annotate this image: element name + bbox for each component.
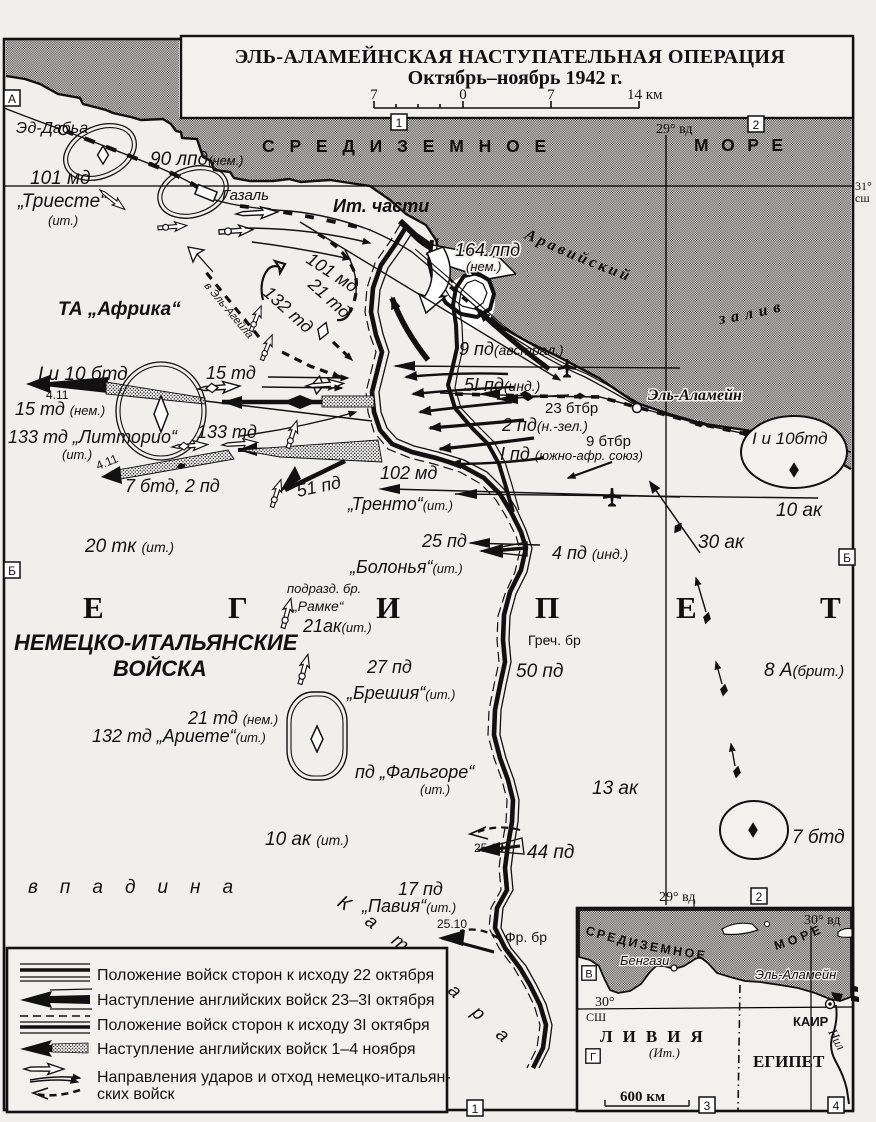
svg-text:Положение войск сторон к исхо: Положение войск сторон к исходу 3I октяб… [97,1017,430,1034]
svg-text:Г: Г [228,590,248,625]
svg-text:Эль-Аламейн: Эль-Аламейн [648,387,742,404]
svg-text:600 км: 600 км [620,1089,665,1105]
svg-text:44 пд: 44 пд [527,842,574,863]
svg-text:Октябрь–ноябрь 1942 г.: Октябрь–ноябрь 1942 г. [408,67,623,89]
svg-text:Наступление английских войск 1: Наступление английских войск 1–4 ноября [97,1041,415,1058]
svg-text:А: А [8,92,16,106]
svg-text:Б: Б [843,551,851,565]
svg-text:СШ: СШ [586,1010,606,1024]
svg-text:Ит. части: Ит. части [333,196,429,216]
svg-text:И: И [376,590,400,625]
svg-text:23 бтбр: 23 бтбр [545,400,598,417]
svg-text:8 А(брит.): 8 А(брит.) [764,660,844,681]
svg-text:пд „Фальгоре“: пд „Фальгоре“ [355,762,475,782]
svg-text:Б: Б [8,564,16,578]
svg-text:25 пд: 25 пд [421,531,467,551]
svg-text:133 тд „Литторио“: 133 тд „Литторио“ [8,427,178,447]
svg-text:ЭЛЬ-АЛАМЕЙНСКАЯ НАСТУПАТЕЛЬНА: ЭЛЬ-АЛАМЕЙНСКАЯ НАСТУПАТЕЛЬНАЯ ОПЕРАЦИЯ [235,45,786,68]
svg-text:2: 2 [756,890,763,904]
svg-text:25.10: 25.10 [474,841,504,855]
svg-text:14 км: 14 км [627,87,663,103]
svg-text:7 бтд: 7 бтд [792,827,845,848]
svg-text:0: 0 [459,87,467,103]
svg-text:Направления ударов и отход нем: Направления ударов и отход немецко-италь… [97,1069,451,1086]
svg-text:Эль-Аламейн: Эль-Аламейн [755,967,836,982]
svg-text:Греч. бр: Греч. бр [528,632,581,648]
svg-text:сш: сш [855,191,870,205]
svg-text:впадина: впадина [28,877,255,898]
svg-text:Положение войск сторон к исход: Положение войск сторон к исходу 22 октяб… [97,967,434,984]
svg-text:„Триесте“: „Триесте“ [17,191,108,212]
svg-text:30° вд: 30° вд [804,913,840,928]
svg-text:5I пд(инд.): 5I пд(инд.) [464,375,540,395]
svg-text:(ит.): (ит.) [420,782,450,797]
svg-text:4 пд (инд.): 4 пд (инд.) [552,543,628,563]
svg-text:(нем.): (нем.) [466,259,501,274]
svg-text:30 ак: 30 ак [698,532,745,553]
svg-text:Т: Т [820,590,841,625]
svg-text:КАИР: КАИР [793,1014,829,1029]
svg-text:10 ак (ит.): 10 ак (ит.) [265,829,349,850]
svg-text:В: В [585,969,592,981]
svg-text:4: 4 [833,1099,840,1113]
svg-text:ВОЙСКА: ВОЙСКА [113,655,207,681]
svg-text:ских войск: ских войск [97,1086,176,1103]
svg-text:27 пд: 27 пд [366,657,412,677]
svg-text:„Рамке“: „Рамке“ [292,598,345,614]
svg-text:1: 1 [472,1102,479,1116]
svg-text:2 пд(н.-зел.): 2 пд(н.-зел.) [501,415,588,435]
svg-text:подразд. бр.: подразд. бр. [287,581,361,596]
svg-text:102 мд: 102 мд [380,463,437,483]
svg-text:29° вд: 29° вд [659,890,695,905]
svg-text:НЕМЕЦКО-ИТАЛЬЯНСКИЕ: НЕМЕЦКО-ИТАЛЬЯНСКИЕ [14,630,299,655]
svg-text:(Ит.): (Ит.) [649,1045,680,1060]
svg-text:90 лпд(нем.): 90 лпд(нем.) [150,149,244,170]
svg-text:Е: Е [83,590,104,625]
svg-text:Г: Г [590,1052,596,1064]
svg-text:10 ак: 10 ак [776,500,823,521]
svg-text:(ит.): (ит.) [62,447,92,462]
svg-text:ЕГИПЕТ: ЕГИПЕТ [753,1052,825,1071]
svg-text:20 тк (ит.): 20 тк (ит.) [84,536,174,557]
svg-text:3: 3 [704,1099,711,1113]
svg-text:9 пд(австрал.): 9 пд(австрал.) [459,339,564,359]
svg-text:ТА „Африка“: ТА „Африка“ [58,299,181,320]
svg-text:П: П [535,590,559,625]
svg-text:ЛИВИЯ: ЛИВИЯ [600,1027,713,1046]
svg-text:1: 1 [396,116,403,130]
svg-text:(ит.): (ит.) [48,213,78,228]
svg-text:13 ак: 13 ак [592,778,639,799]
svg-text:164 лпд: 164 лпд [455,240,520,260]
svg-text:Газаль: Газаль [222,187,269,204]
svg-text:Е: Е [676,590,697,625]
svg-text:15 тд: 15 тд [206,363,256,383]
svg-text:Фр. бр: Фр. бр [505,929,547,945]
svg-text:25.10: 25.10 [437,917,467,931]
svg-text:7: 7 [547,87,555,103]
svg-text:7 бтд, 2 пд: 7 бтд, 2 пд [125,476,220,496]
svg-text:Наступление английских войск 2: Наступление английских войск 23–3I октяб… [97,992,435,1009]
svg-text:Эд-Дабьа: Эд-Дабьа [16,120,88,137]
svg-text:МОРЕ: МОРЕ [694,135,796,155]
svg-text:133 тд: 133 тд [197,422,257,442]
svg-text:50 пд: 50 пд [516,661,563,682]
svg-text:29° вд: 29° вд [656,122,692,137]
svg-text:2: 2 [753,118,760,132]
svg-text:СРЕДИЗЕМНОЕ: СРЕДИЗЕМНОЕ [262,136,561,156]
svg-text:30°: 30° [595,995,615,1010]
svg-text:7: 7 [370,87,378,103]
svg-text:Бенгази: Бенгази [620,953,669,968]
svg-text:101 мд: 101 мд [30,168,91,189]
svg-text:I и 10бтд: I и 10бтд [752,429,827,448]
